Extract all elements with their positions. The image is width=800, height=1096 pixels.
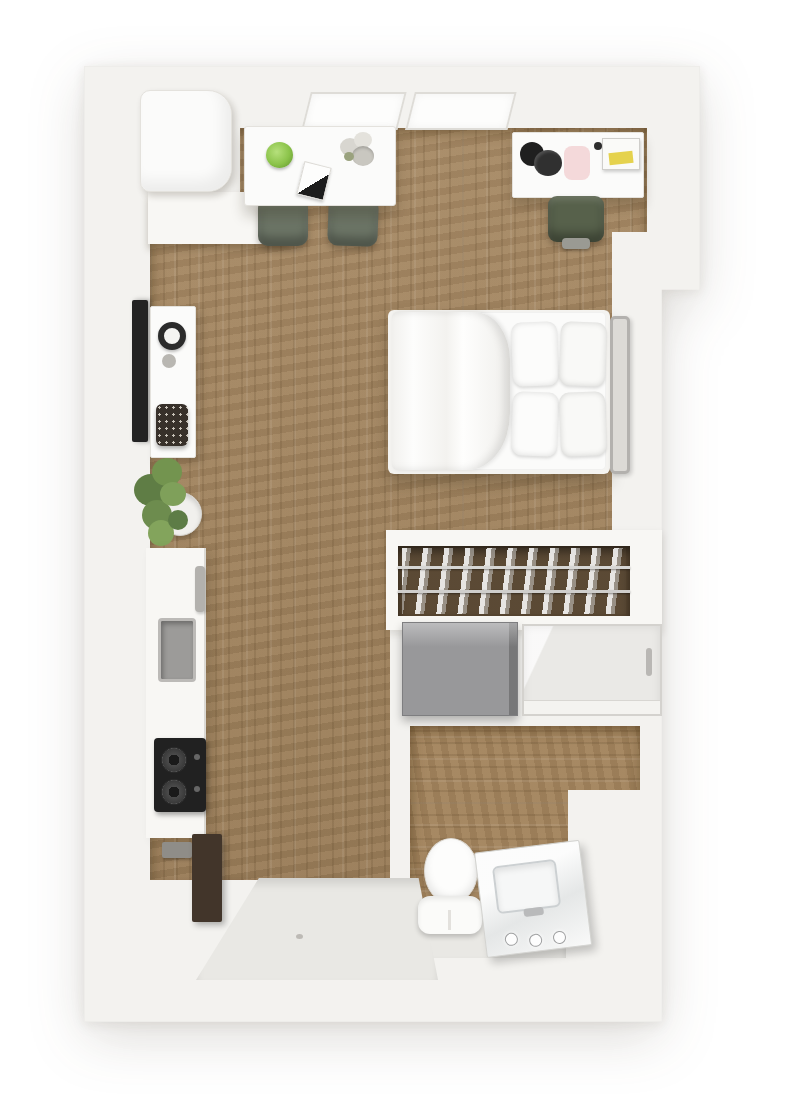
- closet: [386, 530, 662, 630]
- toilet-tank: [418, 896, 482, 934]
- salad-bowl: [266, 142, 293, 168]
- pillow: [511, 321, 559, 387]
- closet-rail: [398, 566, 630, 569]
- pillow: [511, 391, 559, 457]
- dining-chair: [327, 199, 379, 247]
- bed-duvet: [392, 312, 510, 470]
- vanity: [474, 840, 590, 956]
- washer-dryer: [402, 622, 518, 716]
- dining-chair: [258, 200, 308, 246]
- shower-faucet-icon: [646, 648, 652, 676]
- shower-curb: [524, 700, 660, 714]
- desk-chair: [548, 196, 604, 242]
- potted-plant: [134, 458, 204, 552]
- pillow: [559, 321, 607, 387]
- desk-chair-base: [562, 238, 590, 249]
- console-decor: [162, 354, 176, 368]
- burner-icon: [161, 779, 187, 805]
- dark-cabinet: [192, 834, 222, 922]
- toilet-bowl: [424, 838, 478, 904]
- floorplan-image: [0, 0, 800, 1096]
- burner-icon: [161, 747, 187, 773]
- laptop: [602, 138, 640, 170]
- bed-headboard: [610, 316, 630, 474]
- kitchen-sink: [158, 618, 196, 682]
- refrigerator: [140, 90, 232, 192]
- closet-interior: [398, 546, 630, 616]
- shower: [522, 624, 662, 716]
- pillow: [559, 391, 607, 457]
- window-icon: [301, 92, 406, 130]
- stove: [154, 738, 206, 812]
- toilet: [418, 838, 482, 938]
- hanging-clothes: [402, 548, 626, 614]
- headset-icon: [534, 150, 562, 176]
- clock-decor: [158, 322, 186, 350]
- desk-mat: [564, 146, 590, 180]
- flower-vase: [338, 132, 378, 168]
- vanity-basin: [492, 859, 561, 914]
- closet-rail: [398, 590, 630, 593]
- desk-dot: [594, 142, 602, 150]
- counter-shelf: [162, 842, 192, 858]
- tv: [132, 300, 148, 442]
- entry-floor-speck: [296, 934, 303, 939]
- basket: [156, 404, 188, 446]
- faucet-icon: [195, 566, 205, 612]
- window-icon: [405, 92, 516, 130]
